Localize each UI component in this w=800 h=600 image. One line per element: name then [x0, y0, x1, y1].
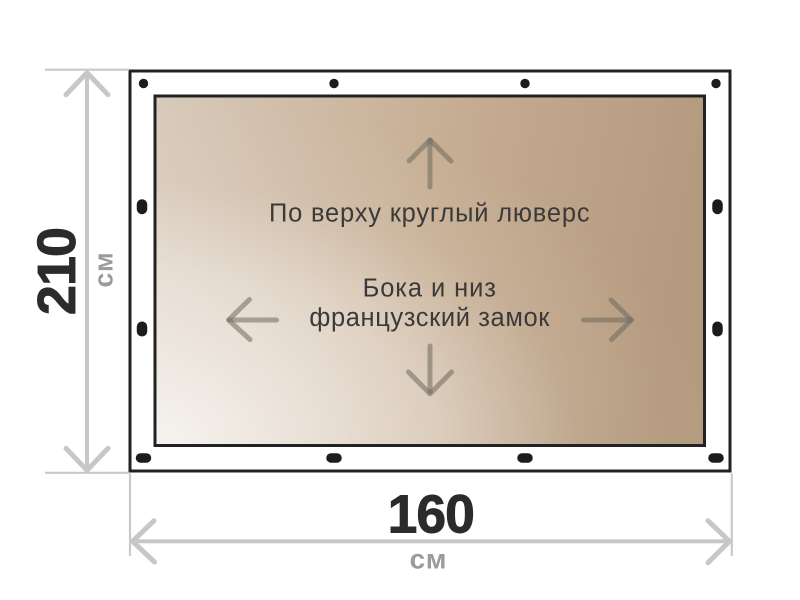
svg-text:160: 160: [388, 486, 474, 545]
svg-text:французский замок: французский замок: [309, 304, 550, 332]
svg-text:см: см: [410, 544, 447, 575]
svg-text:см: см: [88, 252, 118, 288]
svg-text:210: 210: [27, 228, 87, 315]
svg-text:По верху круглый люверс: По верху круглый люверс: [269, 200, 590, 228]
svg-text:Бока и низ: Бока и низ: [363, 275, 497, 303]
